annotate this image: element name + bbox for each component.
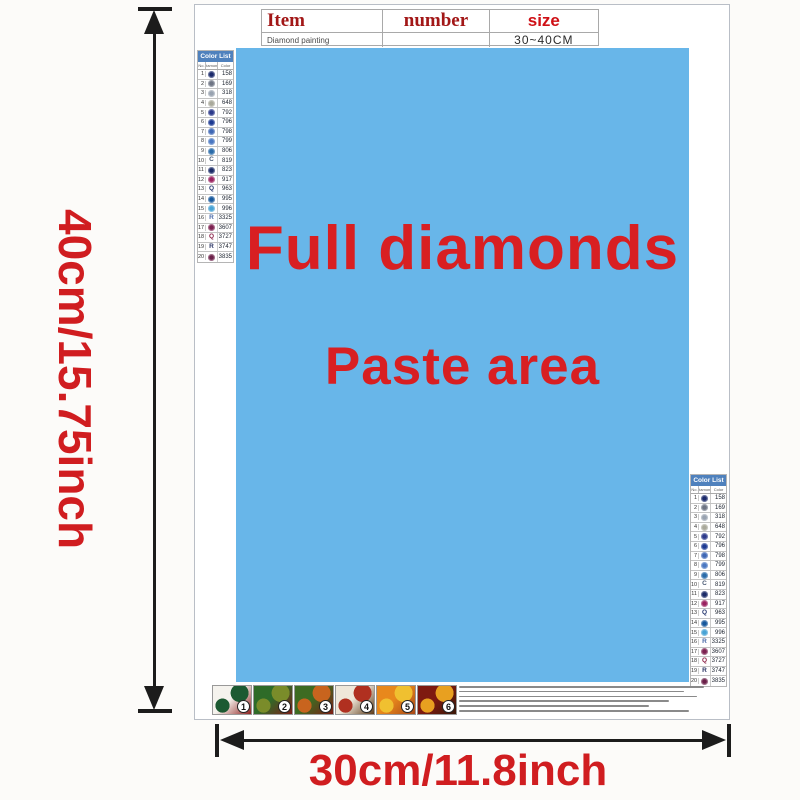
color-list-right: Color List No. Diamond Color 11582169331…: [690, 474, 727, 687]
dmc-color-code: 3325: [218, 215, 233, 221]
dmc-color-code: 798: [218, 129, 233, 135]
diamond-dot-icon: [701, 533, 708, 540]
diamond-symbol-icon: [699, 542, 711, 551]
color-list-row: 18Q3727: [198, 233, 233, 243]
diamond-symbol-icon: [699, 590, 711, 599]
diamond-symbol-icon: [699, 600, 711, 609]
diamond-dot-icon: [208, 205, 215, 212]
row-number: 9: [691, 572, 699, 578]
color-list-row: 14995: [691, 619, 726, 629]
color-list-row: 7798: [691, 552, 726, 562]
number-value: [383, 33, 489, 47]
row-number: 1: [198, 71, 206, 77]
diamond-symbol-icon: R: [699, 667, 711, 676]
item-value: Diamond painting: [262, 33, 383, 47]
row-number: 5: [198, 110, 206, 116]
diamond-symbol-icon: [206, 80, 218, 89]
dmc-color-code: 3835: [218, 254, 233, 260]
col-color: Color: [218, 62, 233, 69]
diamond-dot-icon: [208, 100, 215, 107]
diamond-letter-symbol: Q: [702, 658, 707, 665]
row-number: 5: [691, 534, 699, 540]
diamond-letter-symbol: Q: [209, 234, 214, 241]
dmc-color-code: 648: [218, 100, 233, 106]
dmc-color-code: 819: [218, 158, 233, 164]
color-list-row: 13Q963: [691, 609, 726, 619]
row-number: 20: [198, 254, 206, 260]
step-thumbnail-image: 2: [253, 685, 293, 715]
diamond-symbol-icon: Q: [206, 185, 218, 194]
paste-area: Full diamonds Paste area: [236, 48, 689, 682]
thumbnail-number-badge: 1: [237, 700, 250, 713]
color-list-column-headers: No. Diamond Color: [198, 62, 233, 70]
color-list-row: 173607: [198, 224, 233, 234]
dmc-color-code: 3325: [711, 639, 726, 645]
dmc-color-code: 996: [218, 206, 233, 212]
diamond-dot-icon: [701, 600, 708, 607]
diamond-symbol-icon: [699, 628, 711, 637]
row-number: 13: [691, 610, 699, 616]
diamond-dot-icon: [701, 562, 708, 569]
color-list-row: 13Q963: [198, 185, 233, 195]
dmc-color-code: 158: [711, 495, 726, 501]
diamond-symbol-icon: [206, 108, 218, 117]
horizontal-arrow-right-cap: [727, 724, 731, 757]
diamond-dot-icon: [208, 196, 215, 203]
dmc-color-code: 3727: [711, 658, 726, 664]
diamond-symbol-icon: [699, 552, 711, 561]
diamond-symbol-icon: [699, 676, 711, 686]
dmc-color-code: 169: [711, 505, 726, 511]
color-list-row: 16R3325: [691, 638, 726, 648]
diamond-symbol-icon: [699, 571, 711, 580]
row-number: 19: [691, 668, 699, 674]
diamond-symbol-icon: [206, 224, 218, 233]
diamond-symbol-icon: [206, 128, 218, 137]
diamond-symbol-icon: [206, 99, 218, 108]
row-number: 14: [691, 620, 699, 626]
row-number: 11: [691, 591, 699, 597]
color-list-row: 203835: [691, 676, 726, 686]
horizontal-arrow-line: [232, 739, 714, 742]
col-no: No.: [691, 486, 699, 493]
item-header: Item: [262, 10, 383, 32]
row-number: 17: [691, 649, 699, 655]
dmc-color-code: 169: [218, 81, 233, 87]
diamond-symbol-icon: [206, 70, 218, 79]
diamond-symbol-icon: [699, 532, 711, 541]
paste-area-subtitle: Paste area: [325, 336, 600, 397]
row-number: 3: [198, 90, 206, 96]
row-number: 14: [198, 196, 206, 202]
row-number: 10: [691, 582, 699, 588]
vertical-arrow-bottom-cap: [138, 709, 172, 713]
diamond-symbol-icon: R: [206, 243, 218, 252]
dmc-color-code: 917: [218, 177, 233, 183]
col-no: No.: [198, 62, 206, 69]
color-list-row: 2169: [691, 504, 726, 514]
dmc-color-code: 3607: [711, 649, 726, 655]
row-number: 19: [198, 244, 206, 250]
diamond-dot-icon: [208, 109, 215, 116]
row-number: 11: [198, 167, 206, 173]
diamond-dot-icon: [701, 524, 708, 531]
diamond-dot-icon: [208, 224, 215, 231]
horizontal-arrow-left-cap: [215, 724, 219, 757]
fine-print-line: [459, 700, 669, 702]
dmc-color-code: 3727: [218, 234, 233, 240]
diamond-dot-icon: [701, 620, 708, 627]
color-list-row: 10C819: [198, 156, 233, 166]
thumbnail-number-badge: 4: [360, 700, 373, 713]
row-number: 4: [691, 524, 699, 530]
diamond-dot-icon: [701, 648, 708, 655]
row-number: 18: [198, 234, 206, 240]
color-list-row: 8799: [691, 561, 726, 571]
color-list-row: 19R3747: [691, 667, 726, 677]
diamond-dot-icon: [701, 504, 708, 511]
diamond-symbol-icon: [699, 523, 711, 532]
diamond-symbol-icon: C: [699, 580, 711, 589]
diamond-dot-icon: [208, 254, 215, 261]
color-list-row: 12917: [198, 176, 233, 186]
arrow-down-icon: [144, 686, 164, 710]
canvas-sheet: Item number size Diamond painting 30~40C…: [194, 4, 730, 720]
diamond-letter-symbol: R: [702, 668, 707, 675]
row-number: 8: [198, 138, 206, 144]
diamond-symbol-icon: [699, 504, 711, 513]
diamond-dot-icon: [208, 119, 215, 126]
row-number: 8: [691, 562, 699, 568]
fine-print-line: [459, 691, 684, 693]
diamond-symbol-icon: R: [206, 214, 218, 223]
fine-print-line: [459, 710, 689, 712]
color-list-row: 16R3325: [198, 214, 233, 224]
dmc-color-code: 963: [711, 610, 726, 616]
dmc-color-code: 806: [711, 572, 726, 578]
thumbnail-number-badge: 5: [401, 700, 414, 713]
row-number: 6: [691, 543, 699, 549]
color-list-row: 18Q3727: [691, 657, 726, 667]
dmc-color-code: 3747: [218, 244, 233, 250]
color-list-row: 1158: [198, 70, 233, 80]
diamond-symbol-icon: [206, 147, 218, 156]
dmc-color-code: 819: [711, 582, 726, 588]
dmc-color-code: 799: [711, 562, 726, 568]
row-number: 20: [691, 678, 699, 684]
size-header: size: [490, 10, 598, 32]
diamond-dot-icon: [701, 591, 708, 598]
row-number: 15: [198, 206, 206, 212]
dmc-color-code: 792: [711, 534, 726, 540]
item-table-value-row: Diamond painting 30~40CM: [262, 33, 598, 47]
dmc-color-code: 823: [711, 591, 726, 597]
diamond-dot-icon: [701, 543, 708, 550]
arrow-right-icon: [702, 730, 726, 750]
diamond-letter-symbol: R: [702, 639, 707, 646]
diamond-letter-symbol: R: [209, 244, 214, 251]
color-list-row: 11823: [691, 590, 726, 600]
row-number: 16: [198, 215, 206, 221]
row-number: 4: [198, 100, 206, 106]
diamond-dot-icon: [208, 167, 215, 174]
color-list-row: 9806: [691, 571, 726, 581]
color-list-row: 203835: [198, 252, 233, 262]
dmc-color-code: 3747: [711, 668, 726, 674]
dmc-color-code: 792: [218, 110, 233, 116]
dmc-color-code: 158: [218, 71, 233, 77]
number-header: number: [383, 10, 489, 32]
row-number: 9: [198, 148, 206, 154]
paste-area-title: Full diamonds: [246, 213, 679, 284]
dmc-color-code: 806: [218, 148, 233, 154]
row-number: 7: [198, 129, 206, 135]
color-list-row: 3318: [691, 513, 726, 523]
color-list-row: 10C819: [691, 580, 726, 590]
dmc-color-code: 318: [711, 514, 726, 520]
row-number: 12: [691, 601, 699, 607]
row-number: 15: [691, 630, 699, 636]
row-number: 3: [691, 514, 699, 520]
step-thumbnail-image: 6: [417, 685, 457, 715]
size-value: 30~40CM: [490, 33, 598, 47]
diamond-dot-icon: [701, 629, 708, 636]
dmc-color-code: 917: [711, 601, 726, 607]
color-list-row: 8799: [198, 137, 233, 147]
diamond-dot-icon: [701, 552, 708, 559]
color-list-row: 9806: [198, 147, 233, 157]
color-list-row: 15996: [198, 204, 233, 214]
thumbnail-number-badge: 3: [319, 700, 332, 713]
step-thumbnail-image: 3: [294, 685, 334, 715]
color-list-row: 5792: [198, 108, 233, 118]
color-list-row: 5792: [691, 532, 726, 542]
color-list-rows: 11582169331846485792679677988799980610C8…: [198, 70, 233, 262]
color-list-row: 1158: [691, 494, 726, 504]
col-diamond: Diamond: [206, 62, 218, 69]
color-list-row: 2169: [198, 80, 233, 90]
dmc-color-code: 823: [218, 167, 233, 173]
row-number: 6: [198, 119, 206, 125]
diamond-symbol-icon: [699, 619, 711, 628]
diamond-symbol-icon: [206, 176, 218, 185]
diamond-dot-icon: [208, 71, 215, 78]
diamond-dot-icon: [208, 138, 215, 145]
fine-print-line: [459, 696, 697, 698]
color-list-row: 11823: [198, 166, 233, 176]
color-list-row: 6796: [691, 542, 726, 552]
diamond-dot-icon: [208, 80, 215, 87]
diamond-symbol-icon: Q: [206, 233, 218, 242]
diamond-dot-icon: [701, 678, 708, 685]
dmc-color-code: 799: [218, 138, 233, 144]
color-list-row: 14995: [198, 195, 233, 205]
step-thumbnail-image: 5: [376, 685, 416, 715]
diamond-dot-icon: [208, 148, 215, 155]
row-number: 1: [691, 495, 699, 501]
step-thumbnails: 123456: [212, 685, 457, 715]
dmc-color-code: 796: [711, 543, 726, 549]
diamond-letter-symbol: Q: [702, 610, 707, 617]
item-info-table: Item number size Diamond painting 30~40C…: [261, 9, 599, 46]
color-list-row: 4648: [198, 99, 233, 109]
diamond-dot-icon: [208, 176, 215, 183]
row-number: 16: [691, 639, 699, 645]
diamond-dot-icon: [701, 572, 708, 579]
diamond-dot-icon: [208, 90, 215, 97]
color-list-row: 173607: [691, 648, 726, 658]
row-number: 18: [691, 658, 699, 664]
diamond-dot-icon: [208, 128, 215, 135]
thumbnail-number-badge: 2: [278, 700, 291, 713]
diamond-dot-icon: [701, 495, 708, 502]
instructions-fine-print: [459, 686, 709, 712]
dmc-color-code: 996: [711, 630, 726, 636]
diamond-letter-symbol: C: [209, 157, 214, 164]
diamond-symbol-icon: [206, 252, 218, 262]
dmc-color-code: 796: [218, 119, 233, 125]
color-list-column-headers: No. Diamond Color: [691, 486, 726, 494]
diamond-symbol-icon: [206, 195, 218, 204]
diamond-symbol-icon: [206, 137, 218, 146]
row-number: 12: [198, 177, 206, 183]
row-number: 13: [198, 186, 206, 192]
row-number: 17: [198, 225, 206, 231]
color-list-title: Color List: [198, 51, 233, 62]
dmc-color-code: 963: [218, 186, 233, 192]
color-list-row: 12917: [691, 600, 726, 610]
color-list-row: 19R3747: [198, 243, 233, 253]
dmc-color-code: 3835: [711, 678, 726, 684]
diamond-symbol-icon: [699, 561, 711, 570]
diamond-symbol-icon: C: [206, 156, 218, 165]
row-number: 7: [691, 553, 699, 559]
dmc-color-code: 995: [711, 620, 726, 626]
thumbnail-number-badge: 6: [442, 700, 455, 713]
height-dimension-label: 40cm/15.75inch: [48, 209, 102, 549]
fine-print-line: [459, 705, 649, 707]
color-list-rows: 11582169331846485792679677988799980610C8…: [691, 494, 726, 686]
width-dimension-label: 30cm/11.8inch: [268, 746, 648, 796]
dmc-color-code: 3607: [218, 225, 233, 231]
diamond-symbol-icon: [206, 89, 218, 98]
diamond-symbol-icon: [206, 118, 218, 127]
row-number: 10: [198, 158, 206, 164]
diamond-symbol-icon: [699, 494, 711, 503]
item-table-header-row: Item number size: [262, 10, 598, 33]
diamond-dot-icon: [701, 514, 708, 521]
diamond-letter-symbol: Q: [209, 186, 214, 193]
diamond-symbol-icon: Q: [699, 609, 711, 618]
diamond-symbol-icon: [206, 204, 218, 213]
dmc-color-code: 318: [218, 90, 233, 96]
step-thumbnail-image: 4: [335, 685, 375, 715]
diamond-letter-symbol: R: [209, 215, 214, 222]
color-list-row: 3318: [198, 89, 233, 99]
diamond-symbol-icon: [699, 513, 711, 522]
diamond-symbol-icon: Q: [699, 657, 711, 666]
step-thumbnail-image: 1: [212, 685, 252, 715]
dmc-color-code: 995: [218, 196, 233, 202]
color-list-row: 6796: [198, 118, 233, 128]
row-number: 2: [198, 81, 206, 87]
diamond-symbol-icon: [699, 648, 711, 657]
diamond-letter-symbol: C: [702, 581, 707, 588]
col-color: Color: [711, 486, 726, 493]
color-list-row: 7798: [198, 128, 233, 138]
diamond-symbol-icon: R: [699, 638, 711, 647]
dmc-color-code: 648: [711, 524, 726, 530]
vertical-arrow-line: [153, 24, 156, 686]
diamond-symbol-icon: [206, 166, 218, 175]
col-diamond: Diamond: [699, 486, 711, 493]
row-number: 2: [691, 505, 699, 511]
color-list-title: Color List: [691, 475, 726, 486]
dmc-color-code: 798: [711, 553, 726, 559]
color-list-row: 4648: [691, 523, 726, 533]
fine-print-line: [459, 686, 704, 688]
color-list-left: Color List No. Diamond Color 11582169331…: [197, 50, 234, 263]
color-list-row: 15996: [691, 628, 726, 638]
